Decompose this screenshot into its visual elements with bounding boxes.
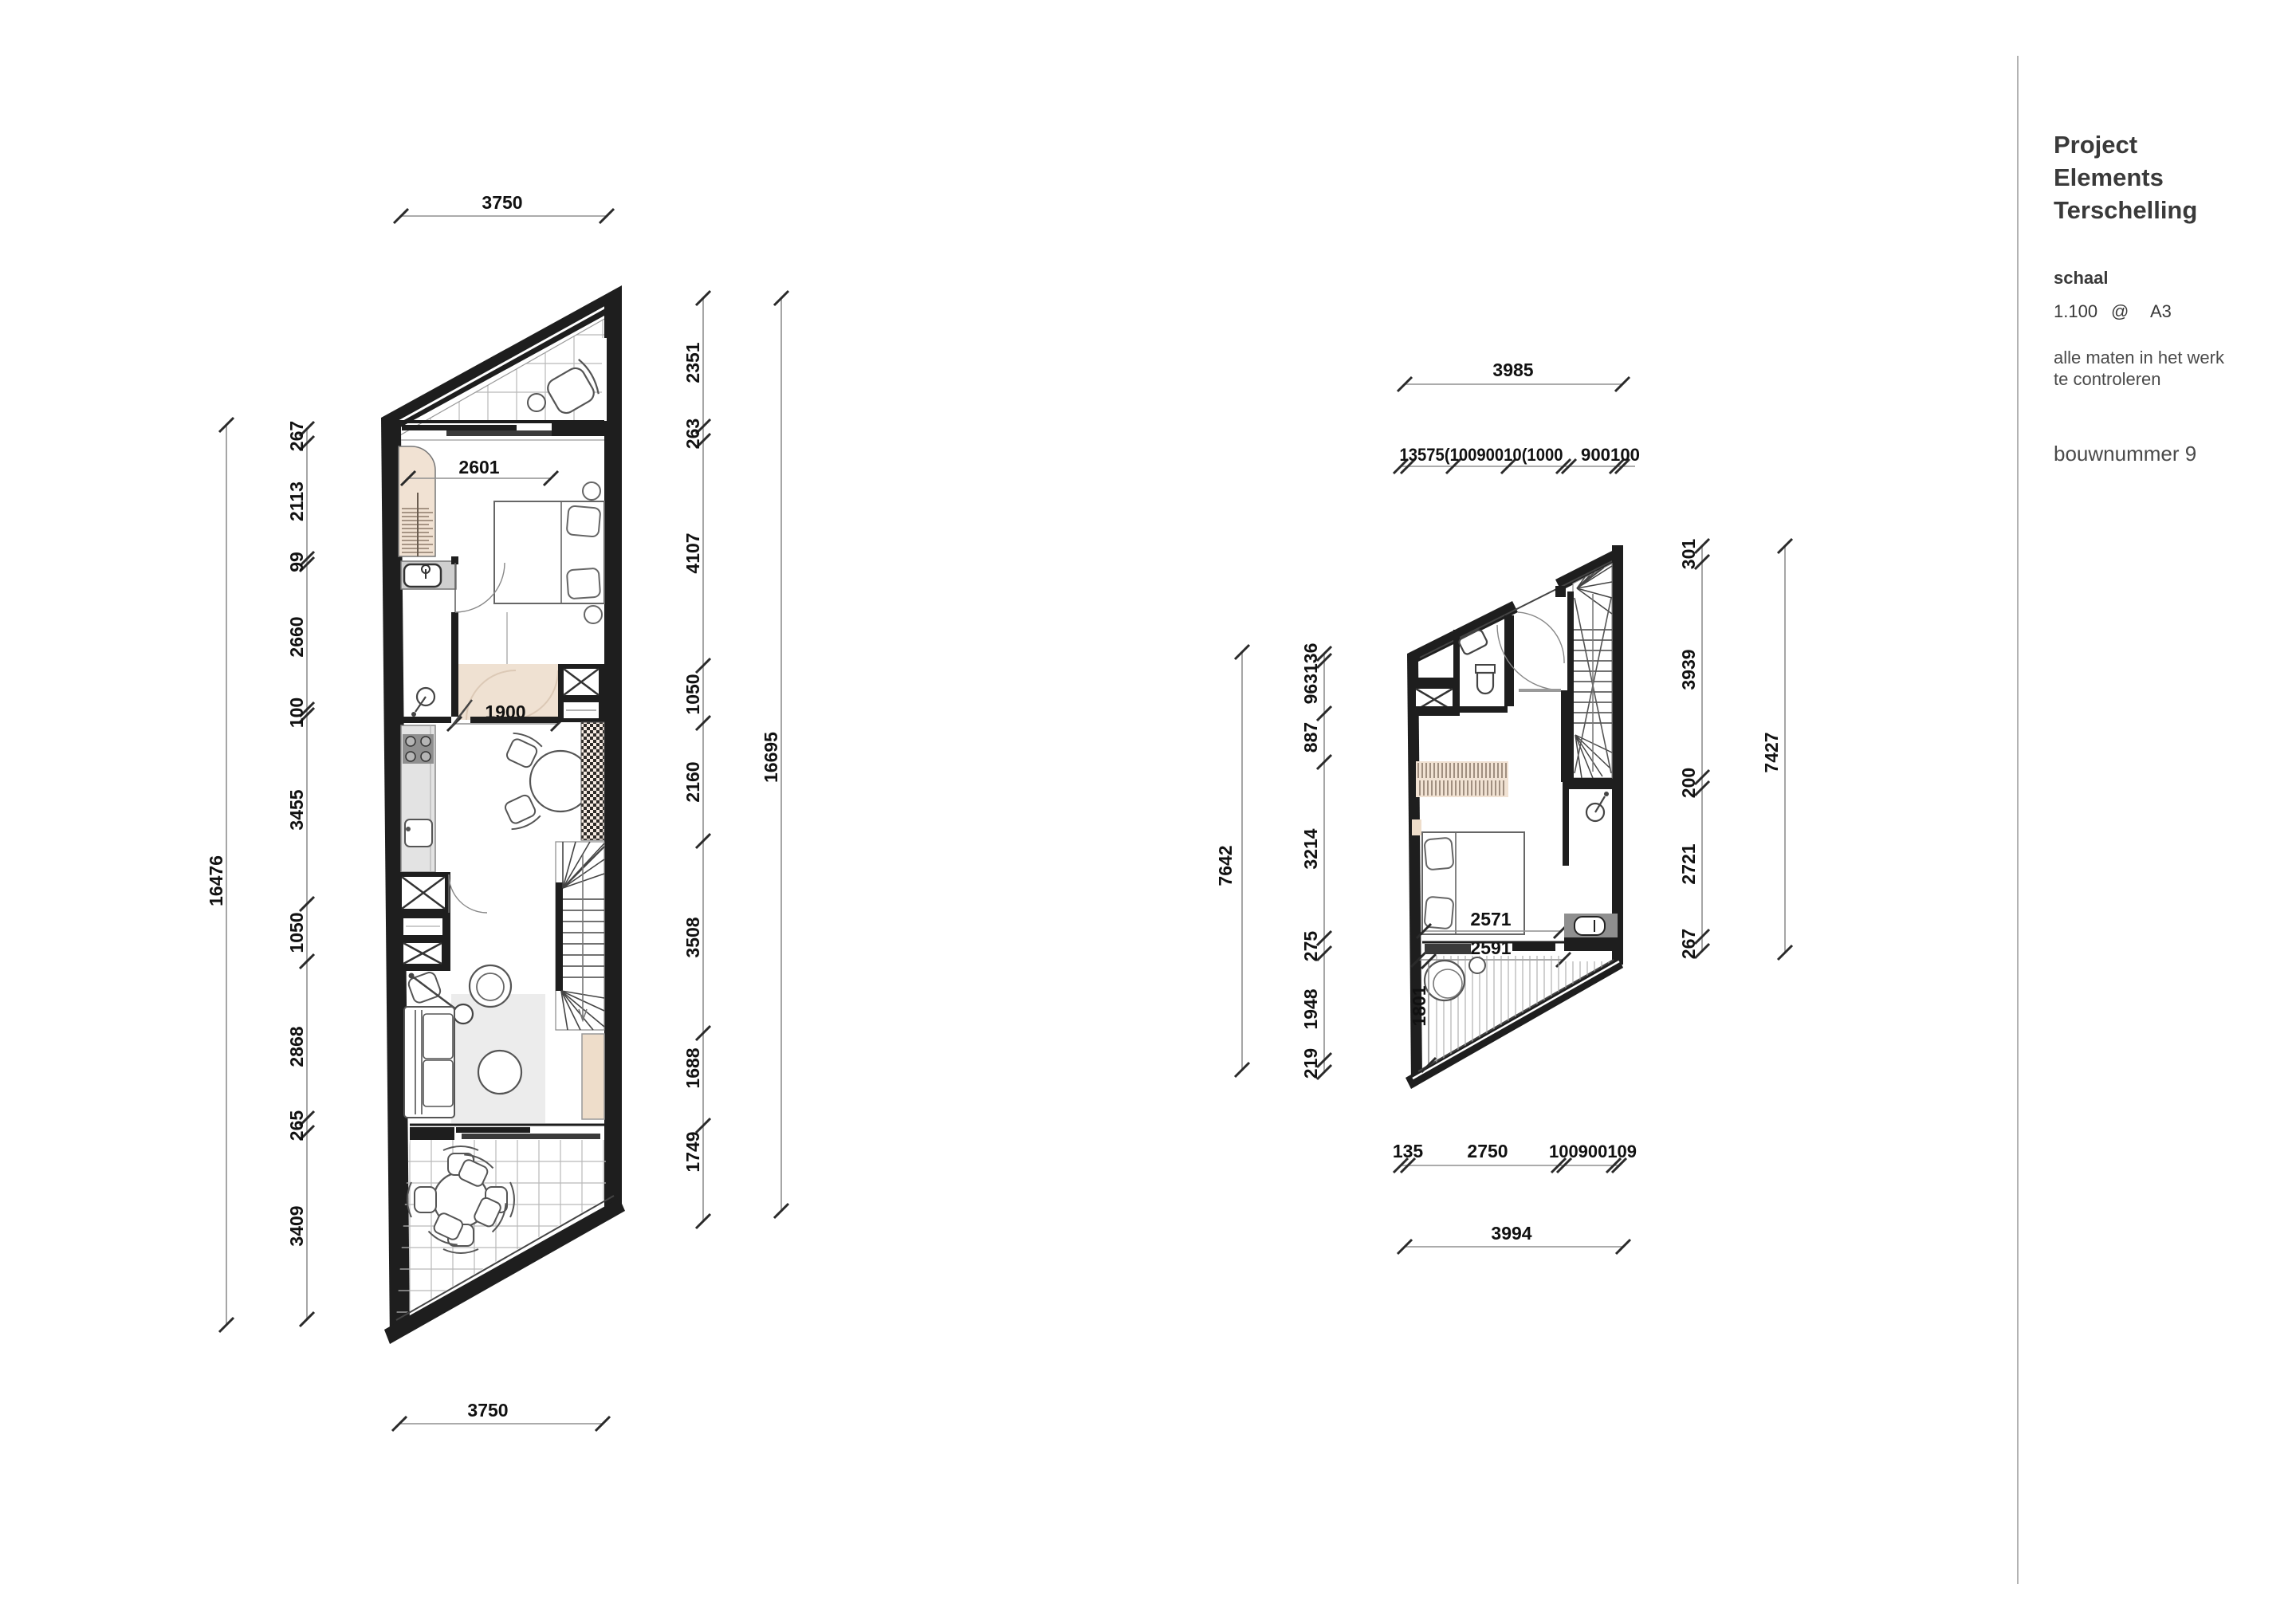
svg-text:bouwnummer 9: bouwnummer 9 xyxy=(2054,442,2196,466)
svg-text:265: 265 xyxy=(286,1110,307,1142)
svg-text:3750: 3750 xyxy=(482,192,522,213)
svg-text:2750: 2750 xyxy=(1467,1141,1508,1161)
svg-text:13575(10090010(1000: 13575(10090010(1000 xyxy=(1400,445,1563,465)
svg-text:2660: 2660 xyxy=(286,616,307,657)
svg-text:3455: 3455 xyxy=(286,789,307,830)
svg-text:2571: 2571 xyxy=(1470,909,1511,929)
svg-text:1801: 1801 xyxy=(1409,985,1429,1026)
svg-text:Terschelling: Terschelling xyxy=(2054,196,2197,224)
svg-text:1050: 1050 xyxy=(682,674,703,714)
svg-text:te controleren: te controleren xyxy=(2054,369,2161,389)
svg-text:2113: 2113 xyxy=(286,481,307,521)
svg-text:100: 100 xyxy=(286,698,307,728)
svg-text:1948: 1948 xyxy=(1300,988,1321,1029)
svg-text:3214: 3214 xyxy=(1300,828,1321,869)
svg-text:1688: 1688 xyxy=(682,1047,703,1088)
svg-text:3939: 3939 xyxy=(1678,649,1699,690)
svg-text:alle maten in het werk: alle maten in het werk xyxy=(2054,348,2225,367)
svg-text:2160: 2160 xyxy=(682,761,703,802)
svg-text:16695: 16695 xyxy=(761,732,781,783)
svg-text:267: 267 xyxy=(1678,929,1699,959)
svg-text:963136: 963136 xyxy=(1300,643,1321,705)
svg-text:Elements: Elements xyxy=(2054,163,2164,191)
svg-text:2591: 2591 xyxy=(1470,937,1511,958)
svg-text:1749: 1749 xyxy=(682,1131,703,1172)
svg-text:3985: 3985 xyxy=(1492,360,1533,380)
svg-text:135: 135 xyxy=(1393,1141,1424,1161)
svg-text:99: 99 xyxy=(286,552,307,572)
svg-text:7427: 7427 xyxy=(1761,732,1782,772)
svg-text:2601: 2601 xyxy=(458,457,499,477)
svg-text:schaal: schaal xyxy=(2054,268,2109,288)
svg-text:900100: 900100 xyxy=(1581,445,1640,465)
svg-text:1.100: 1.100 xyxy=(2054,301,2097,321)
svg-text:3994: 3994 xyxy=(1491,1223,1531,1244)
svg-text:275: 275 xyxy=(1300,931,1321,962)
svg-text:3750: 3750 xyxy=(467,1400,508,1421)
svg-text:2868: 2868 xyxy=(286,1026,307,1067)
svg-text:4107: 4107 xyxy=(682,532,703,573)
svg-text:7642: 7642 xyxy=(1215,845,1236,886)
svg-text:219: 219 xyxy=(1300,1048,1321,1079)
svg-text:2721: 2721 xyxy=(1678,843,1699,884)
svg-text:887: 887 xyxy=(1300,722,1321,753)
svg-text:200: 200 xyxy=(1678,768,1699,798)
svg-text:A3: A3 xyxy=(2150,301,2172,321)
svg-text:263: 263 xyxy=(682,419,703,449)
svg-text:Project: Project xyxy=(2054,131,2137,159)
svg-text:267: 267 xyxy=(286,421,307,451)
svg-text:1050: 1050 xyxy=(286,912,307,953)
svg-text:100900109: 100900109 xyxy=(1549,1142,1637,1161)
svg-text:3508: 3508 xyxy=(682,917,703,957)
svg-text:301: 301 xyxy=(1678,539,1699,570)
svg-text:16476: 16476 xyxy=(206,855,226,906)
svg-text:2351: 2351 xyxy=(682,342,703,383)
svg-text:3409: 3409 xyxy=(286,1205,307,1246)
svg-text:@: @ xyxy=(2111,301,2129,321)
